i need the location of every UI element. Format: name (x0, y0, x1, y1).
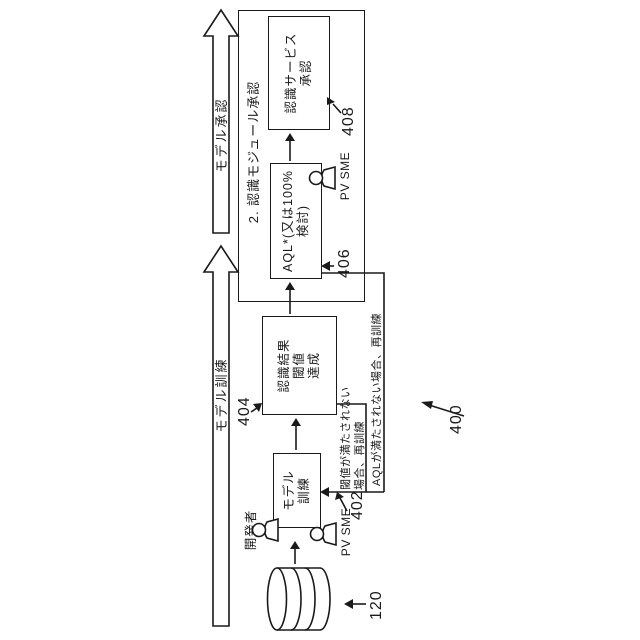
aql-review-box-line1: AQL*(又は100% (281, 170, 296, 272)
ref-406: 406 (336, 248, 354, 278)
aql-review-box-line2: 検討) (296, 205, 311, 237)
arrowhead-ref-402 (335, 492, 344, 500)
model-training-box-line1: モデル (282, 470, 297, 511)
ref-120: 120 (368, 590, 386, 620)
recognition-threshold-box: 認識結果 閾値 達成 (262, 316, 337, 415)
model-training-box: モデル 訓練 (273, 453, 321, 528)
aql-review-box: AQL*(又は100% 検討) (270, 163, 322, 279)
recognition-service-approval-box-line2: 承認 (299, 60, 314, 87)
recognition-threshold-box-line2: 閾値 (292, 352, 307, 379)
recognition-threshold-box-line1: 認識結果 (277, 339, 292, 393)
arrowhead-db-to-training (290, 541, 300, 549)
patent-figure-page: モデル 訓練 認識結果 閾値 達成 AQL*(又は100% 検討) 認識サービス… (0, 0, 640, 640)
aql-feedback-text: AQLが満たされない場合、再訓練 (368, 270, 384, 486)
recognition-threshold-box-line3: 達成 (307, 352, 322, 379)
phase-arrow-approval-label: モデル承認 (214, 50, 230, 220)
phase-arrow-training-label: モデル訓練 (214, 310, 230, 480)
arrowhead-ref-404 (253, 403, 262, 412)
ref-408: 408 (340, 106, 358, 136)
model-training-box-line2: 訓練 (297, 477, 312, 504)
arrowhead-ref-400 (421, 401, 433, 409)
arrowhead-ref-120 (344, 599, 353, 609)
arrowhead-training-to-threshold (291, 418, 301, 426)
recognition-service-approval-box-line1: 認識サービス (284, 33, 299, 114)
module-approval-group-title: 2. 認識モジュール承認 (243, 62, 262, 242)
ref-402: 402 (349, 490, 367, 520)
ref-404: 404 (236, 396, 254, 426)
pv-sme-aql-label: PV SME (338, 150, 352, 202)
ref-400: 400 (448, 404, 466, 434)
database-icon (268, 568, 331, 630)
flow-diagram-canvas: モデル 訓練 認識結果 閾値 達成 AQL*(又は100% 検討) 認識サービス… (0, 0, 640, 640)
arrowhead-feedback-trunk (320, 487, 329, 497)
developer-label: 開発者 (240, 504, 259, 556)
threshold-feedback-text-line2: 場合、再訓練 (351, 378, 367, 490)
recognition-service-approval-box: 認識サービス 承認 (268, 16, 330, 130)
